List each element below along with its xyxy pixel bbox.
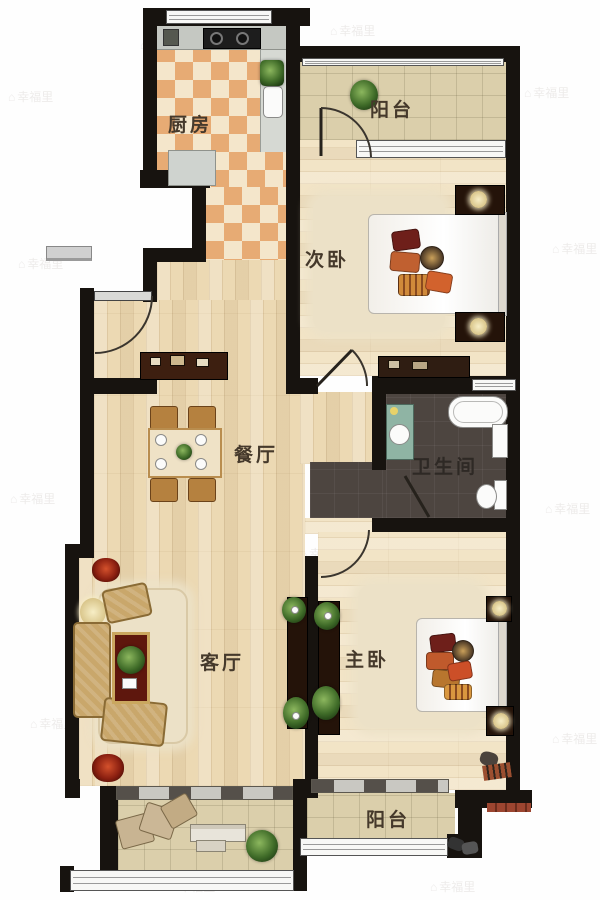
room-label-balcony-bottom: 阳台 <box>366 805 410 832</box>
floorplan-canvas: ⌂幸福里 ⌂幸福里 ⌂幸福里 ⌂幸福里 ⌂幸福里 ⌂幸福里 ⌂幸福里 ⌂幸福里 … <box>0 0 600 900</box>
bathroom-door-leaf <box>405 476 429 517</box>
room-label-dining: 餐厅 <box>234 440 278 467</box>
master-door-arc <box>321 530 369 577</box>
room-label-balcony-top: 阳台 <box>370 95 414 122</box>
bedroom-second-door-leaf <box>317 350 352 386</box>
room-label-bedroom-second: 次卧 <box>305 245 349 272</box>
bedroom-second-door-arc <box>352 350 367 386</box>
entry-door-arc <box>95 296 152 353</box>
room-label-kitchen: 厨房 <box>168 110 212 137</box>
room-label-bathroom: 卫生间 <box>412 452 478 479</box>
room-label-living: 客厅 <box>200 648 244 675</box>
balcony-door-arc <box>321 108 371 157</box>
door-arcs-overlay <box>0 0 600 900</box>
room-label-bedroom-master: 主卧 <box>345 645 389 672</box>
